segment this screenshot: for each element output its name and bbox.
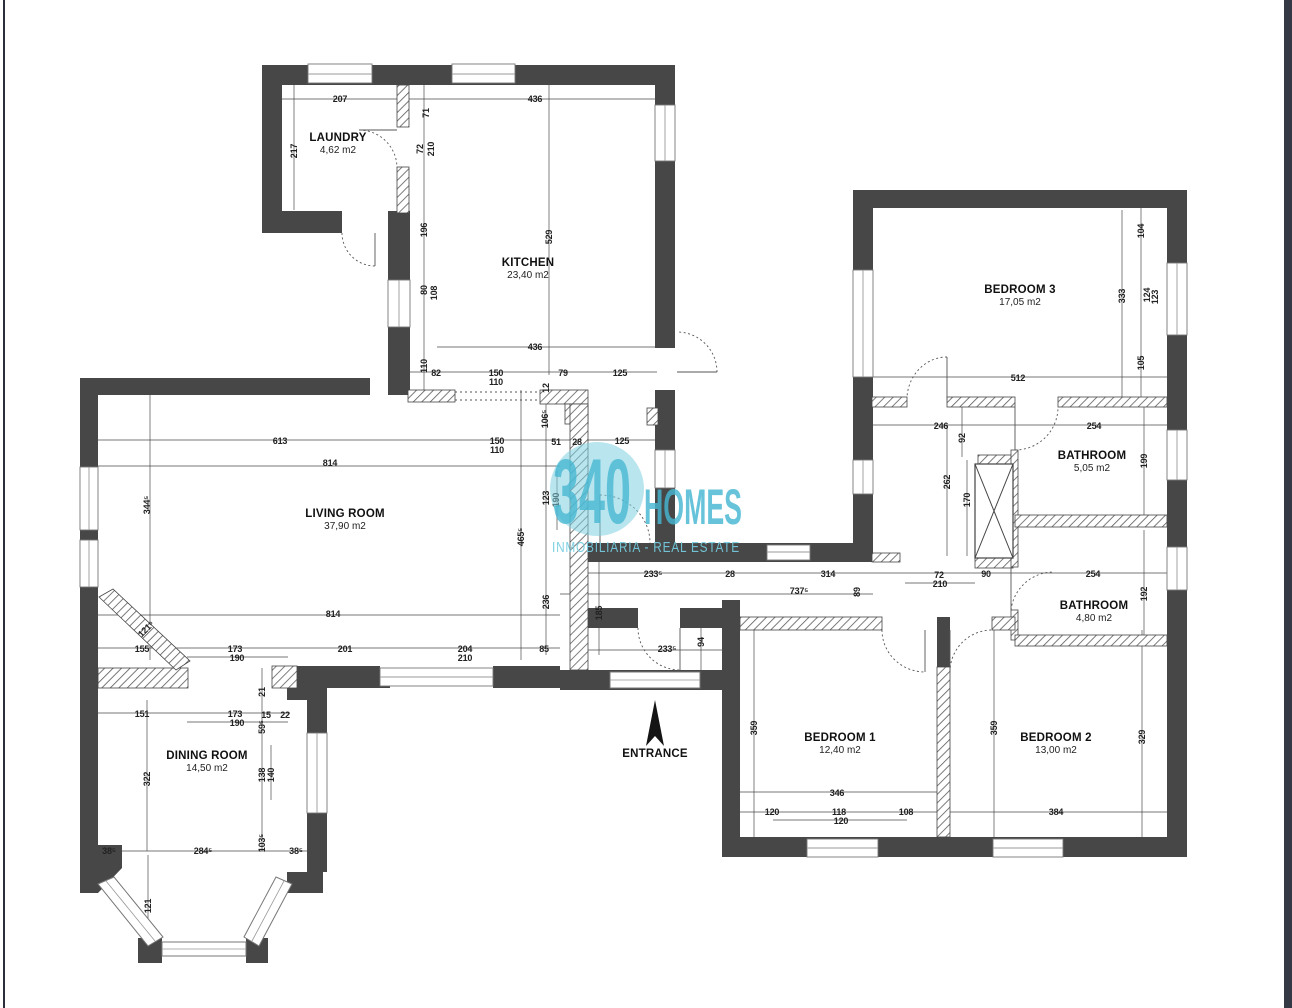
room-label-area: 12,40 m2 <box>819 745 861 756</box>
dimension-label: 199 <box>1139 454 1149 469</box>
dimension-label: 254 <box>1087 421 1102 431</box>
dimension-label: 333 <box>1117 289 1127 304</box>
dimension-label: 192 <box>1139 587 1149 602</box>
dimension-label: 185 <box>594 606 604 621</box>
dimension-label: 89 <box>852 587 862 597</box>
dimension-label: 110 <box>490 445 504 455</box>
dimension-label: 814 <box>326 609 341 619</box>
dimension-label: 28 <box>725 569 735 579</box>
watermark-tagline: INMOBILIARIA - REAL ESTATE <box>552 539 740 556</box>
dimension-label: 71 <box>421 108 431 118</box>
dimension-label: 329 <box>1137 730 1147 745</box>
dimension-label: 737⁵ <box>790 586 808 596</box>
dimension-label: 217 <box>289 144 299 159</box>
dimension-label: 110 <box>489 377 503 387</box>
dimension-label: 22 <box>280 710 290 720</box>
dimension-label: 59⁵ <box>257 720 267 734</box>
room-label-name: BEDROOM 2 <box>1020 732 1091 744</box>
room-label-area: 14,50 m2 <box>186 763 228 774</box>
dimension-label: 85 <box>539 644 549 654</box>
dimension-label: 12 <box>541 383 551 393</box>
dimension-label: 105 <box>1136 356 1146 371</box>
room-label-area: 23,40 m2 <box>507 270 549 281</box>
room-label-name: LAUNDRY <box>309 132 366 144</box>
dimension-label: 106⁵ <box>540 410 550 428</box>
dimension-label: 359 <box>989 721 999 736</box>
dimension-label: 103⁵ <box>257 834 267 852</box>
dimension-label: 233⁵ <box>658 644 676 654</box>
dimension-label: 108 <box>429 286 439 301</box>
room-label-area: 13,00 m2 <box>1035 745 1077 756</box>
dimension-label: 384 <box>1049 807 1064 817</box>
dimension-label: 90 <box>981 569 991 579</box>
dimension-label: 613 <box>273 436 288 446</box>
room-label-name: BEDROOM 1 <box>804 732 876 744</box>
dimension-label: 170 <box>962 493 972 508</box>
dimension-label: 155 <box>135 644 150 654</box>
dimension-label: 15 <box>261 710 271 720</box>
watermark-number: 340 <box>553 441 631 543</box>
floorplan-drawing: LAUNDRY4,62 m2KITCHEN23,40 m2LIVING ROOM… <box>0 0 1292 1008</box>
dimension-label: 210 <box>458 653 473 663</box>
dimension-label: 207 <box>333 94 348 104</box>
entrance-marker: ENTRANCE <box>622 700 688 760</box>
dimension-label: 346 <box>830 788 845 798</box>
entrance-label: ENTRANCE <box>622 748 688 760</box>
dimension-label: 82 <box>431 368 441 378</box>
dimension-label: 80 <box>419 285 429 295</box>
dimension-label: 121 <box>143 899 153 914</box>
dimension-label: 210 <box>933 579 948 589</box>
room-label-area: 4,62 m2 <box>320 145 357 156</box>
dimension-label: 94 <box>696 637 706 647</box>
dimension-label: 322 <box>142 772 152 787</box>
room-label-name: BATHROOM <box>1060 600 1128 612</box>
dimension-label: 21 <box>257 687 267 697</box>
dimension-label: 190 <box>230 718 245 728</box>
dimension-label: 512 <box>1011 373 1026 383</box>
room-label-name: DINING ROOM <box>166 750 247 762</box>
dimension-label: 104 <box>1136 224 1146 239</box>
dimension-label: 262 <box>942 475 952 490</box>
dimension-label: 314 <box>821 569 836 579</box>
dimension-label: 236 <box>541 595 551 610</box>
dimension-label: 814 <box>323 458 338 468</box>
dimension-label: 72 <box>415 144 425 154</box>
dimension-label: 38⁵ <box>289 846 303 856</box>
dimension-label: 79 <box>558 368 568 378</box>
room-label-area: 37,90 m2 <box>324 521 366 532</box>
dimension-label: 108 <box>899 807 914 817</box>
dimension-label: 254 <box>1086 569 1101 579</box>
watermark-word: HOMES <box>644 479 742 535</box>
north-arrow-icon <box>646 700 664 746</box>
dimension-label: 151 <box>135 709 150 719</box>
dimension-label: 201 <box>338 644 353 654</box>
dimension-label: 436 <box>528 94 543 104</box>
dimension-label: 344⁵ <box>142 496 152 514</box>
dimension-label: 359 <box>749 721 759 736</box>
dimension-label: 465⁵ <box>516 528 526 546</box>
dimension-label: 284⁵ <box>194 846 212 856</box>
dimension-label: 120 <box>765 807 780 817</box>
room-label-area: 17,05 m2 <box>999 297 1041 308</box>
dimension-label: 246 <box>934 421 949 431</box>
dimension-label: 196 <box>419 223 429 238</box>
dimension-label: 140 <box>266 768 276 783</box>
floorplan-page: LAUNDRY4,62 m2KITCHEN23,40 m2LIVING ROOM… <box>0 0 1292 1008</box>
dimension-label: 123 <box>1150 290 1160 305</box>
room-label-area: 5,05 m2 <box>1074 463 1111 474</box>
shaft <box>975 464 1013 558</box>
entrance-door <box>610 672 700 688</box>
room-label-name: LIVING ROOM <box>305 508 385 520</box>
room-label-area: 4,80 m2 <box>1076 613 1113 624</box>
bay-window <box>80 845 323 963</box>
watermark: 340 HOMES INMOBILIARIA - REAL ESTATE <box>550 441 742 556</box>
dimension-label: 125 <box>613 368 628 378</box>
dimension-label: 233⁵ <box>644 569 662 579</box>
dimension-label: 436 <box>528 342 543 352</box>
dimension-label: 110 <box>419 359 429 373</box>
room-label-name: BATHROOM <box>1058 450 1126 462</box>
dimension-label: 120 <box>834 816 849 826</box>
dimension-label: 190 <box>230 653 245 663</box>
room-label-name: KITCHEN <box>502 257 555 269</box>
dimension-label: 123 <box>541 491 551 506</box>
dimension-label: 529 <box>544 230 554 245</box>
dimension-label: 210 <box>426 142 436 157</box>
room-label-name: BEDROOM 3 <box>984 284 1055 296</box>
dimension-label: 38⁵ <box>102 846 116 856</box>
dimension-label: 92 <box>957 433 967 443</box>
